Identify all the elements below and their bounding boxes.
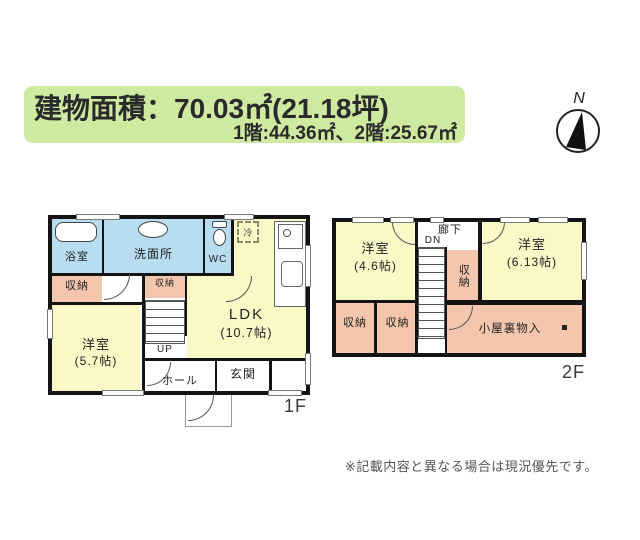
disclaimer-note: ※記載内容と異なる場合は現況優先です。: [345, 456, 598, 475]
compass-north-label: N: [573, 90, 585, 107]
wall: [336, 300, 418, 303]
stairs-down-label: DN: [418, 236, 448, 247]
room-label-ldk-size: (10.7帖): [187, 327, 306, 340]
room-label-closet-a: 収納: [336, 318, 374, 330]
wall: [269, 361, 272, 391]
window: [538, 217, 568, 223]
floor-label-1f: 1F: [284, 396, 307, 417]
floor-plan-2f: 洋室 (4.6帖) 廊下 DN 収納 収納 収納 洋室 (6.13帖) 小屋裏物…: [332, 218, 586, 357]
window: [500, 217, 530, 223]
room-label-closet-center: 収納: [145, 279, 185, 288]
toilet-tank-icon: [212, 221, 227, 228]
room-label-closet-b: 収納: [377, 318, 418, 330]
refrigerator-label: 冷: [243, 226, 252, 239]
room-label-wc: WC: [205, 255, 231, 266]
room-label-bedroom-size: (5.7帖): [52, 355, 140, 368]
window: [102, 390, 144, 396]
wall: [145, 358, 306, 361]
room-label-bedroom-right-size: (6.13帖): [482, 256, 582, 269]
window: [352, 217, 384, 223]
door-arc: [104, 274, 130, 300]
wall: [102, 219, 104, 273]
door-arc: [188, 395, 214, 421]
compass-icon: N: [548, 86, 608, 156]
stove-icon: [278, 224, 303, 249]
stove-burner-icon: [283, 229, 291, 237]
window: [430, 217, 444, 223]
floor-plan-1f: 冷 浴室 洗面所 WC 収納 収納 洋室 (5.7帖) LDK (10.7帖) …: [48, 215, 310, 395]
window: [76, 214, 120, 220]
building-area-breakdown: 1階:44.36㎡、2階:25.67㎡: [233, 118, 457, 145]
room-label-closet-left: 収納: [52, 281, 102, 293]
room-label-bedroom-left-size: (4.6帖): [336, 260, 415, 273]
attic-marker-icon: [562, 325, 567, 330]
stairs-up-label: UP: [145, 345, 185, 356]
toilet-bowl-icon: [213, 229, 226, 246]
room-label-entrance: 玄関: [217, 368, 269, 381]
refrigerator-icon: 冷: [237, 221, 259, 243]
compass-needle-icon: [566, 112, 586, 150]
wall: [52, 302, 143, 305]
room-label-attic: 小屋裏物入: [445, 323, 575, 335]
room-label-bedroom-left: 洋室: [336, 242, 415, 256]
room-label-bedroom: 洋室: [52, 338, 140, 352]
room-label-bedroom-right: 洋室: [482, 238, 582, 252]
wall: [231, 219, 234, 276]
window: [390, 217, 414, 223]
window: [224, 214, 254, 220]
kitchen-sink-icon: [281, 261, 303, 287]
bathtub-icon: [55, 222, 97, 242]
stairs-1f: [145, 300, 185, 344]
floor-label-2f: 2F: [562, 362, 585, 383]
room-entrance-side: [272, 361, 306, 391]
room-label-closet-mid: 収納: [447, 253, 478, 298]
entrance-porch: [185, 395, 232, 427]
room-label-hall: ホール: [145, 376, 215, 388]
window: [305, 245, 311, 287]
floorplan-page: 建物面積：70.03㎡(21.18坪) 1階:44.36㎡、2階:25.67㎡ …: [0, 0, 640, 540]
wall: [445, 300, 582, 305]
stairs-2f: [418, 247, 445, 339]
window: [47, 309, 53, 339]
window: [305, 353, 311, 385]
building-area-header: 建物面積：70.03㎡(21.18坪) 1階:44.36㎡、2階:25.67㎡: [24, 86, 465, 143]
room-label-bath: 浴室: [52, 252, 102, 264]
room-label-ldk: LDK: [187, 307, 306, 323]
room-label-washroom: 洗面所: [104, 248, 203, 261]
sink-icon: [138, 221, 168, 238]
